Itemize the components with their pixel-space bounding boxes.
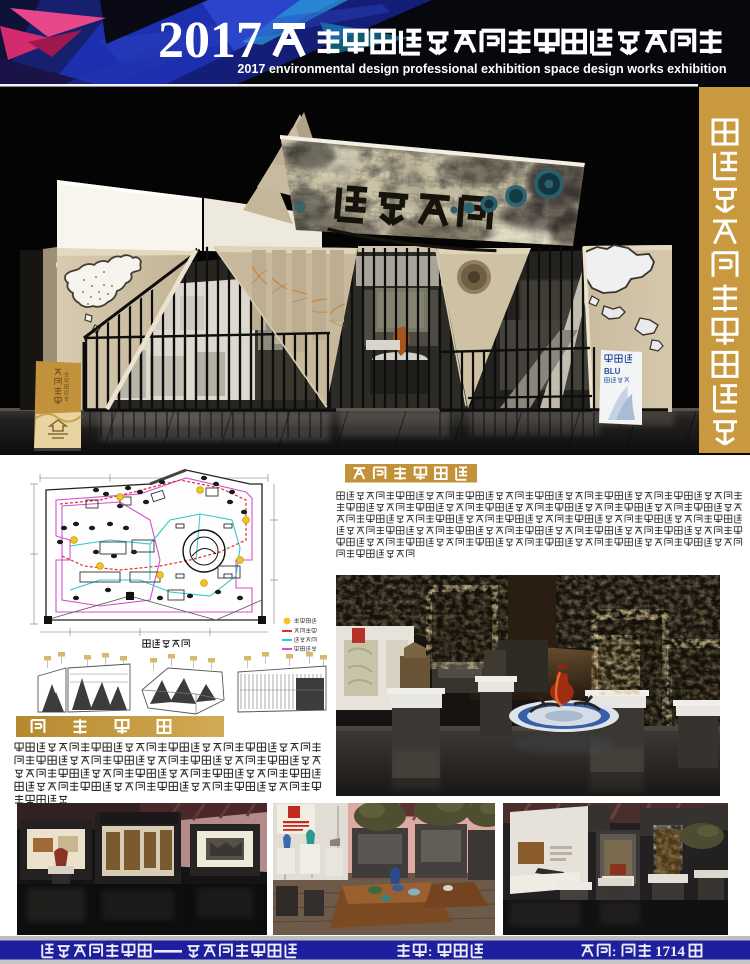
svg-text:2017: 2017: [158, 12, 262, 69]
svg-text:1714: 1714: [655, 944, 686, 960]
svg-text:BLU: BLU: [604, 367, 621, 376]
svg-text::: :: [428, 944, 432, 959]
svg-text::: :: [612, 944, 616, 959]
svg-text:2017 environmental design prof: 2017 environmental design professional e…: [237, 62, 726, 76]
